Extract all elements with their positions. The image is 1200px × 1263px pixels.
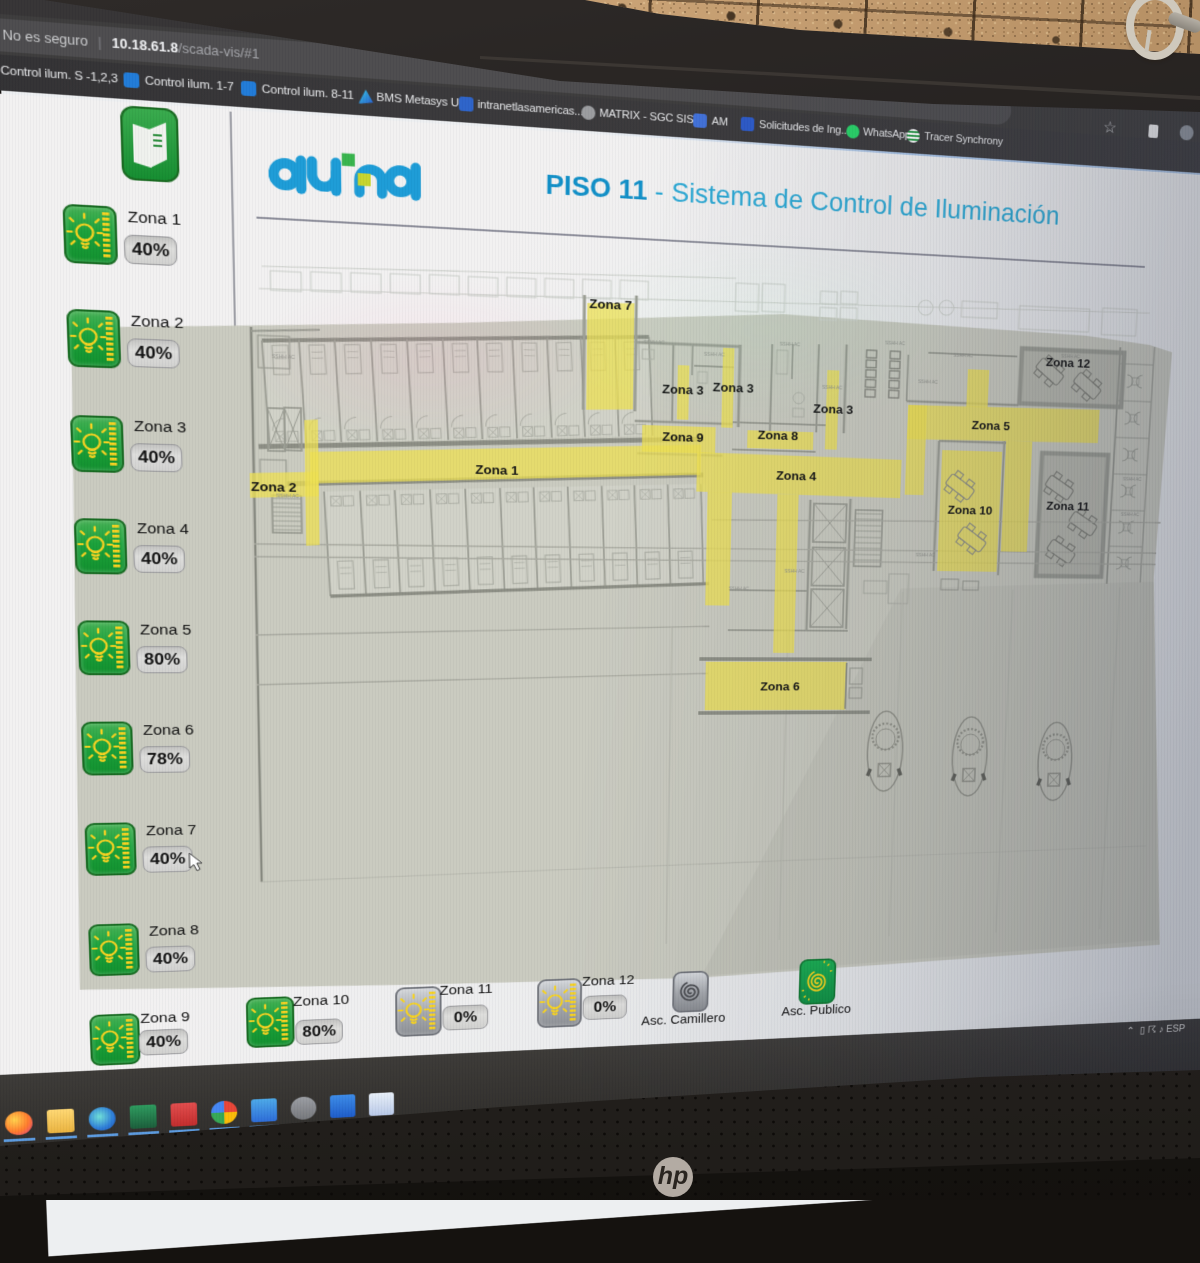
svg-text:SSHH AC: SSHH AC [1121, 513, 1140, 518]
svg-text:Zona 9: Zona 9 [662, 430, 704, 445]
svg-text:SSHH AC: SSHH AC [272, 354, 295, 360]
svg-text:SSHH AC: SSHH AC [784, 569, 804, 574]
svg-text:SSHH AC: SSHH AC [1123, 477, 1142, 482]
svg-text:Zona 7: Zona 7 [589, 297, 632, 314]
svg-text:Zona 11: Zona 11 [1046, 499, 1090, 513]
svg-text:Zona 3: Zona 3 [813, 402, 853, 417]
svg-text:SSHH AC: SSHH AC [885, 341, 905, 347]
svg-text:SSHH AC: SSHH AC [822, 385, 842, 391]
svg-text:Zona 8: Zona 8 [758, 428, 799, 443]
svg-text:Zona 12: Zona 12 [1046, 356, 1091, 371]
svg-text:Zona 5: Zona 5 [971, 419, 1010, 434]
svg-text:SSHH AC: SSHH AC [780, 342, 801, 348]
svg-text:SSHH AC: SSHH AC [953, 353, 973, 359]
svg-text:SSHH AC: SSHH AC [704, 352, 725, 358]
svg-text:SSHH AC: SSHH AC [916, 553, 936, 558]
svg-text:SSHH AC: SSHH AC [918, 380, 938, 386]
svg-text:Zona 10: Zona 10 [947, 503, 992, 517]
svg-text:SSHH AC: SSHH AC [729, 587, 749, 592]
svg-text:Zona 4: Zona 4 [776, 469, 817, 484]
svg-text:Zona 3: Zona 3 [713, 380, 754, 396]
svg-text:SSHH AC: SSHH AC [644, 340, 665, 346]
svg-text:Zona 1: Zona 1 [475, 463, 519, 478]
svg-text:Zona 3: Zona 3 [662, 382, 704, 398]
svg-text:Zona 6: Zona 6 [760, 680, 800, 693]
svg-text:Zona 2: Zona 2 [251, 480, 297, 496]
